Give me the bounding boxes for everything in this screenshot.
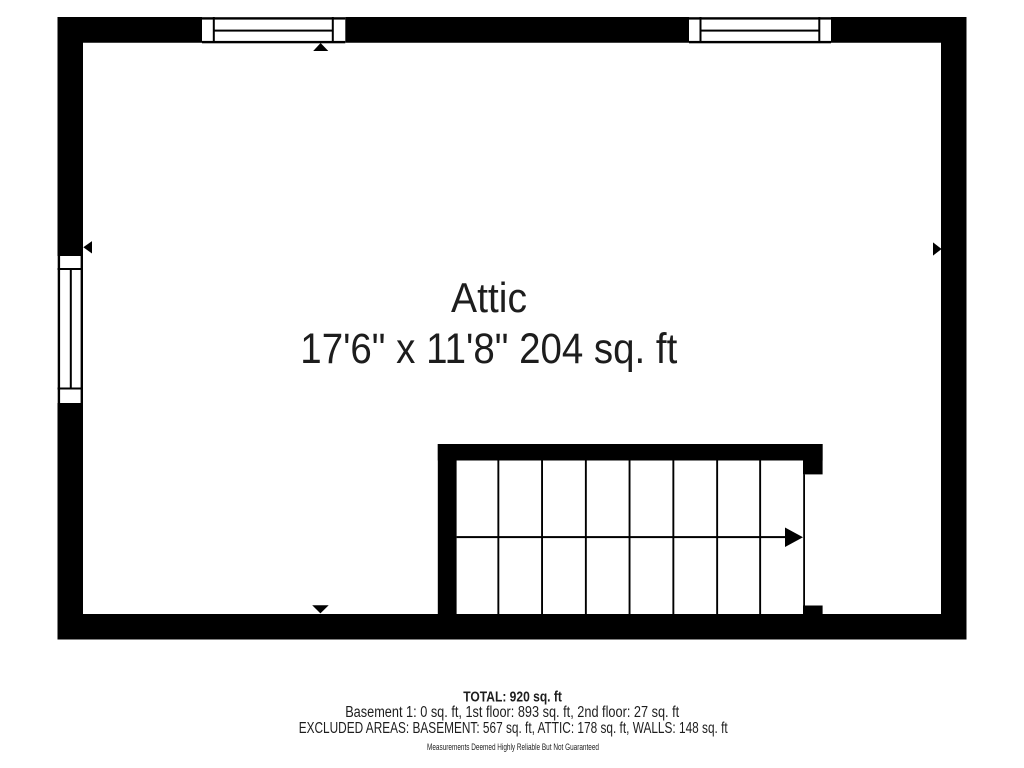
svg-text:Measurements Deemed Highly Rel: Measurements Deemed Highly Reliable But … [427,742,599,752]
svg-text:17'6" x 11'8" 204 sq. ft: 17'6" x 11'8" 204 sq. ft [300,325,677,373]
svg-text:TOTAL: 920 sq. ft: TOTAL: 920 sq. ft [463,690,562,706]
svg-text:EXCLUDED AREAS: BASEMENT: 567: EXCLUDED AREAS: BASEMENT: 567 sq. ft, AT… [299,720,729,737]
svg-text:Basement 1: 0 sq. ft, 1st floo: Basement 1: 0 sq. ft, 1st floor: 893 sq.… [345,704,680,721]
svg-text:Attic: Attic [451,274,527,321]
